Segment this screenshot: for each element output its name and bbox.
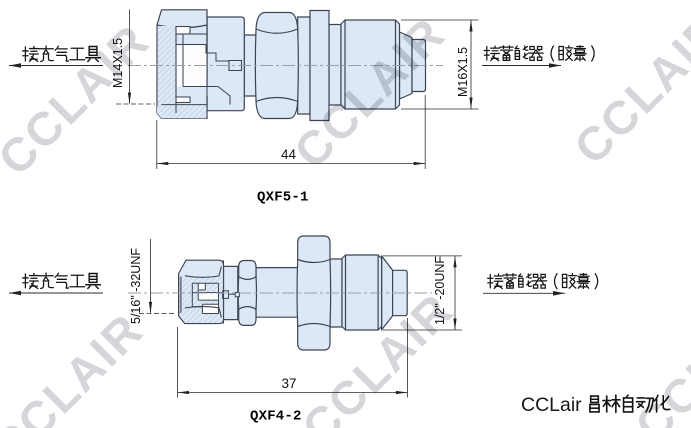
svg-text:M16X1.5: M16X1.5 [456, 47, 470, 97]
svg-text:37: 37 [282, 376, 297, 391]
svg-text:CCLair: CCLair [521, 394, 582, 416]
svg-text:CCLAIR: CCLAIR [564, 3, 691, 175]
svg-text:5/16" -32UNF: 5/16" -32UNF [129, 248, 143, 324]
svg-text:CCLAIR: CCLAIR [0, 303, 153, 428]
svg-text:CCLAIR: CCLAIR [0, 14, 159, 186]
svg-text:QXF5-1: QXF5-1 [257, 190, 309, 206]
svg-text:CCLAIR: CCLAIR [625, 281, 691, 428]
